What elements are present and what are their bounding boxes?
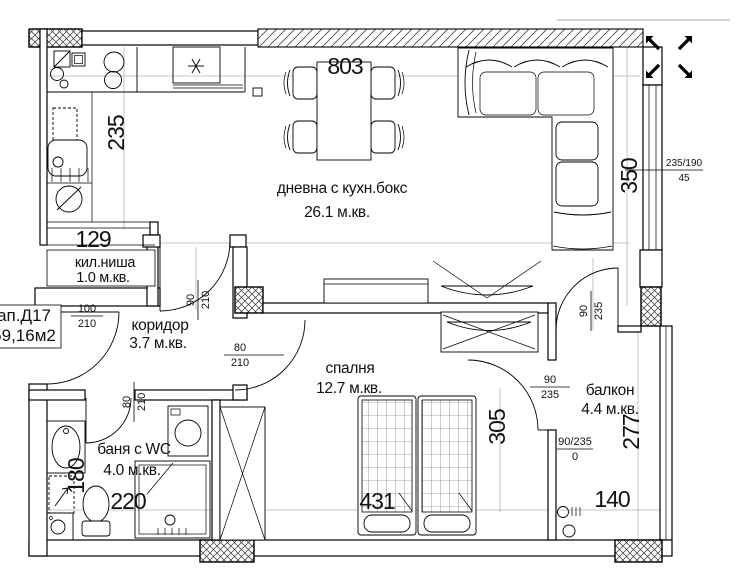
pillow <box>364 515 410 532</box>
room-label-living: дневна с кухн.бокс <box>277 180 408 197</box>
bedroom-top-wall <box>263 303 548 313</box>
bottom-wall <box>29 540 672 556</box>
dim-kitchen-side: 235 <box>103 115 129 151</box>
svg-text:210: 210 <box>136 393 148 411</box>
dim-bedroom-width: 431 <box>359 488 395 514</box>
svg-text:210: 210 <box>200 291 212 309</box>
dim-bathroom-side: 180 <box>63 458 89 494</box>
svg-text:235/190: 235/190 <box>666 158 703 169</box>
bathroom-right-wall <box>212 400 220 540</box>
dim-balcony-depth: 277 <box>618 414 644 450</box>
svg-text:90: 90 <box>544 374 556 386</box>
room-label-balcony: балкон <box>586 382 635 399</box>
apartment-code: ап.Д17 <box>0 306 51 325</box>
column-right <box>641 287 661 326</box>
svg-text:90: 90 <box>578 305 590 317</box>
dim-balcony-width: 140 <box>594 486 630 512</box>
room-label-corridor: коридор <box>131 317 188 334</box>
dim-niche-width: 129 <box>75 226 111 252</box>
apartment-label: ап.Д17 59,16м2 <box>0 305 61 348</box>
dim-living-width: 803 <box>327 53 363 79</box>
hatched-top-wall <box>258 29 643 47</box>
bed <box>418 396 476 535</box>
room-area-niche: 1.0 м.кв. <box>76 270 130 286</box>
room-area-living: 26.1 м.кв. <box>304 204 370 221</box>
room-area-corridor: 3.7 м.кв. <box>129 335 186 352</box>
washing-machine <box>168 406 208 456</box>
apartment-total-area: 59,16м2 <box>0 326 56 345</box>
dim-living-right-side: 350 <box>616 158 642 194</box>
tv-cabinet-bedroom <box>441 312 538 352</box>
floorplan-drawing: ап.Д17 59,16м2 дневна с кухн.бокс 26.1 м… <box>0 0 738 575</box>
dim-bathroom-width: 220 <box>110 488 146 514</box>
svg-text:90/235: 90/235 <box>558 436 592 448</box>
floorplan-page: ап.Д17 59,16м2 дневна с кухн.бокс 26.1 м… <box>0 0 738 575</box>
column-bottom-left <box>200 540 254 562</box>
bed <box>358 396 416 535</box>
right-window <box>643 85 662 250</box>
svg-text:210: 210 <box>231 357 249 369</box>
svg-text:80: 80 <box>234 342 246 354</box>
pillow <box>424 515 470 532</box>
room-area-bedroom: 12.7 м.кв. <box>316 380 382 397</box>
svg-text:100: 100 <box>78 303 96 315</box>
svg-text:210: 210 <box>78 318 96 330</box>
svg-text:90: 90 <box>185 294 197 306</box>
column-middle <box>235 287 263 313</box>
left-wall-lower <box>29 384 47 556</box>
column-bottom-right <box>615 540 662 562</box>
dim-bedroom-depth: 305 <box>484 409 510 445</box>
svg-text:45: 45 <box>678 173 690 184</box>
room-label-bedroom: спалня <box>326 360 375 377</box>
svg-text:235: 235 <box>593 302 605 320</box>
svg-text:0: 0 <box>572 451 578 463</box>
left-wall-upper <box>40 29 47 245</box>
room-area-bathroom: 4.0 м.кв. <box>103 462 160 479</box>
column-top-left <box>29 29 82 47</box>
wardrobe <box>220 407 265 540</box>
room-label-bathroom: баня с WC <box>97 441 171 458</box>
svg-text:235: 235 <box>541 389 559 401</box>
svg-text:80: 80 <box>121 396 133 408</box>
room-label-niche: кил.ниша <box>75 255 137 271</box>
